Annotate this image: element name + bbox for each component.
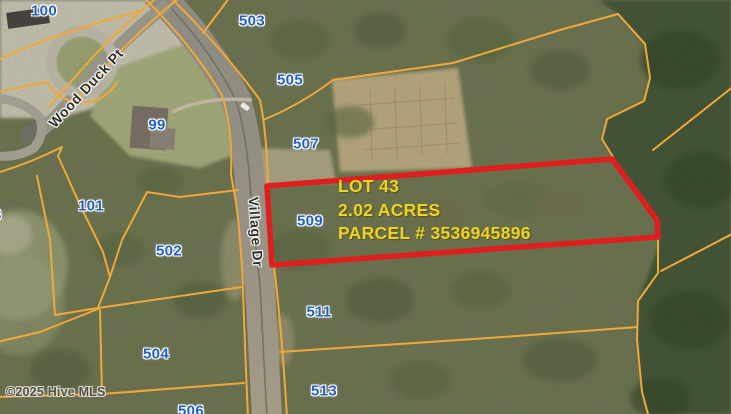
highlight-lot-number: LOT 43 — [338, 175, 531, 199]
satellite-parcel-map: 100 503 505 99 507 509 511 513 101 502 5… — [0, 0, 731, 414]
mls-watermark: ©2025 Hive MLS — [6, 385, 106, 399]
highlight-parcel-number: PARCEL # 3536945896 — [338, 222, 531, 246]
highlight-annotation: LOT 43 2.02 ACRES PARCEL # 3536945896 — [338, 175, 531, 246]
highlight-acreage: 2.02 ACRES — [338, 199, 531, 223]
